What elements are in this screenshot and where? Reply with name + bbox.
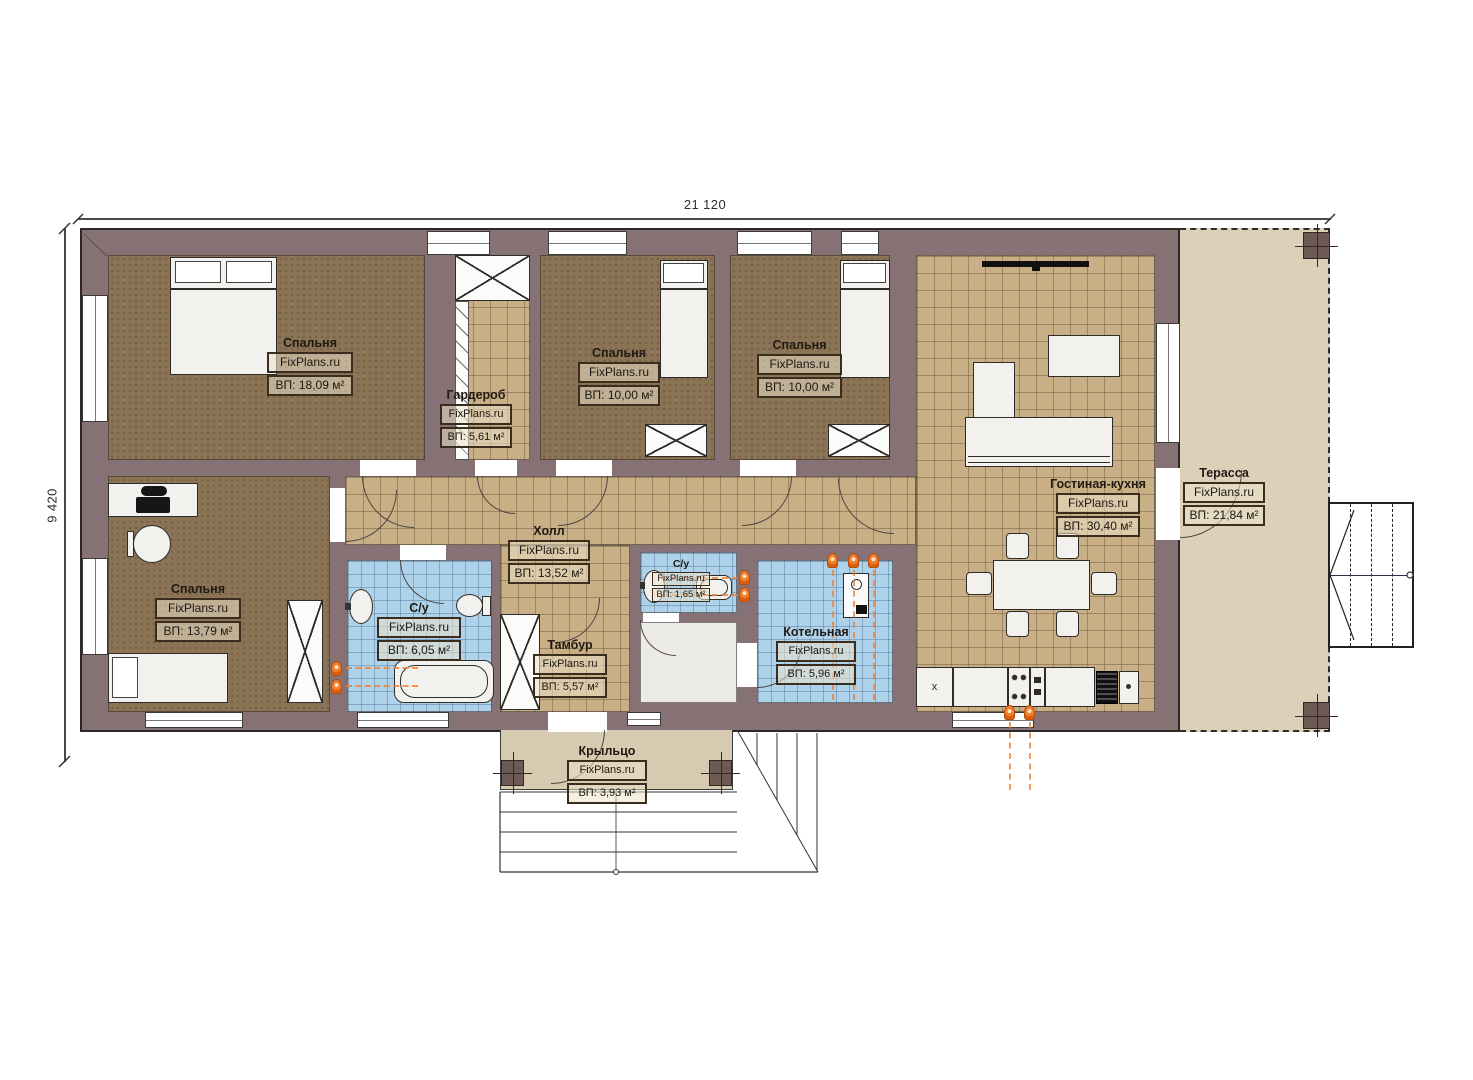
dimension-width-label: 21 120 [630, 197, 780, 212]
post-axis-line [1317, 224, 1318, 267]
watermark: FixPlans.ru [533, 654, 607, 675]
door-opening [740, 460, 796, 476]
room-name: Тамбур [533, 638, 607, 652]
room-name: С/у [377, 601, 461, 615]
pillow [175, 261, 221, 283]
room-name: Спальня [155, 582, 241, 596]
printer [141, 486, 167, 496]
dining-chair [1006, 611, 1029, 637]
room-name: Терасса [1183, 466, 1265, 480]
heating-pipe-line [346, 685, 418, 687]
window [952, 712, 1034, 728]
printer-body [136, 497, 170, 513]
room-name: Спальня [267, 336, 353, 350]
radiator-valve-icon [331, 661, 342, 676]
gas-connection-icon [868, 553, 879, 568]
gas-connection-icon [827, 553, 838, 568]
gas-connection-icon [848, 553, 859, 568]
wardrobe-cabinet [828, 424, 890, 457]
terrace-door-opening [1156, 468, 1180, 540]
gas-pipe-line [873, 570, 875, 700]
door-opening [360, 460, 416, 476]
faucet [345, 603, 351, 610]
dining-chair [1006, 533, 1029, 559]
refrigerator [1096, 671, 1118, 704]
door-opening [475, 460, 517, 476]
room-name: Котельная [776, 625, 856, 639]
door-opening [556, 460, 612, 476]
heating-pipe-line [346, 667, 418, 669]
watermark: FixPlans.ru [440, 404, 512, 425]
room-name: Спальня [578, 346, 660, 360]
room-label-boiler-room: Котельная FixPlans.ru ВП: 5,96 м² [776, 625, 856, 685]
room-label-bedroom3: Спальня FixPlans.ru ВП: 10,00 м² [757, 338, 842, 398]
window [548, 231, 627, 255]
porch-post [709, 760, 732, 786]
dimension-line-top [78, 218, 1331, 220]
coffee-table [1048, 335, 1120, 377]
terrace-post [1303, 232, 1330, 259]
sofa [965, 417, 1113, 467]
oven [1030, 667, 1045, 707]
bathtub-basin [400, 665, 488, 698]
entrance-door-opening [548, 712, 607, 732]
room-area: ВП: 21,84 м² [1183, 505, 1265, 526]
pillow [843, 263, 886, 283]
gas-connection-icon [1024, 705, 1035, 720]
watermark: FixPlans.ru [1183, 482, 1265, 503]
tv-mount [1032, 267, 1040, 271]
wardrobe-cabinet [287, 600, 323, 703]
room-name: С/у [652, 558, 710, 570]
dining-chair [1091, 572, 1117, 595]
pillow [663, 263, 704, 283]
room-name: Крыльцо [567, 744, 647, 758]
post-axis-line [513, 752, 514, 794]
wardrobe-cabinet [645, 424, 707, 457]
window [737, 231, 812, 255]
stove [1008, 667, 1030, 707]
terrace-stairs [1328, 502, 1414, 648]
sink [349, 589, 373, 624]
kitchen-counter [1045, 667, 1095, 707]
pillow [226, 261, 272, 283]
pillow [112, 657, 138, 698]
radiator-valve-icon [331, 679, 342, 694]
room-name: Гардероб [440, 388, 512, 402]
dining-chair [1056, 611, 1079, 637]
office-chair [133, 525, 171, 563]
faucet [640, 582, 645, 589]
boiler-hatch [856, 605, 867, 614]
room-label-vestibule: Тамбур FixPlans.ru ВП: 5,57 м² [533, 638, 607, 698]
room-area: ВП: 13,52 м² [508, 563, 590, 584]
room-label-bathroom1: С/у FixPlans.ru ВП: 6,05 м² [377, 601, 461, 661]
porch-post [501, 760, 524, 786]
window [841, 231, 879, 255]
watermark: FixPlans.ru [1056, 493, 1140, 514]
dining-table [993, 560, 1090, 610]
door-opening [400, 545, 446, 560]
room-area: ВП: 1,65 м² [652, 588, 710, 602]
door-opening [330, 488, 345, 542]
sofa-backrest [968, 456, 1110, 463]
chair-back [127, 531, 134, 557]
window [357, 712, 449, 728]
gas-pipe-line [1029, 722, 1031, 790]
room-area: ВП: 30,40 м² [1056, 516, 1140, 537]
room-area: ВП: 3,93 м² [567, 783, 647, 804]
room-label-bedroom2: Спальня FixPlans.ru ВП: 10,00 м² [578, 346, 660, 406]
watermark: FixPlans.ru [757, 354, 842, 375]
window [1156, 323, 1180, 443]
single-bed [840, 260, 890, 378]
room-area: ВП: 5,57 м² [533, 677, 607, 698]
dimension-height-label: 9 420 [45, 466, 60, 546]
room-label-porch: Крыльцо FixPlans.ru ВП: 3,93 м² [567, 744, 647, 804]
radiator-valve-icon [739, 570, 750, 585]
watermark: FixPlans.ru [578, 362, 660, 383]
double-bed [170, 257, 277, 375]
blanket-line [170, 288, 277, 290]
floor-plan: 21 120 9 420 [0, 0, 1473, 1080]
room-name: Спальня [757, 338, 842, 352]
post-axis-line [1317, 694, 1318, 737]
single-bed [108, 653, 228, 703]
watermark: FixPlans.ru [508, 540, 590, 561]
room-label-bedroom1: Спальня FixPlans.ru ВП: 18,09 м² [267, 336, 353, 396]
room-area: ВП: 5,96 м² [776, 664, 856, 685]
radiator-valve-icon [739, 587, 750, 602]
room-name: Холл [508, 524, 590, 538]
window [82, 295, 108, 422]
window [82, 558, 108, 655]
stair-direction-line [1330, 575, 1412, 576]
wardrobe-shelving-unit [455, 255, 530, 301]
gas-pipe-line [1009, 722, 1011, 790]
gas-connection-icon [1004, 705, 1015, 720]
dimension-line-left [64, 228, 66, 762]
window [145, 712, 243, 728]
room-area: ВП: 13,79 м² [155, 621, 241, 642]
toilet-tank [482, 596, 491, 616]
blanket-line [840, 288, 890, 290]
room-label-wardrobe: Гардероб FixPlans.ru ВП: 5,61 м² [440, 388, 512, 448]
kitchen-sink-cabinet: x [916, 667, 953, 707]
room-label-living-kitchen: Гостиная-кухня FixPlans.ru ВП: 30,40 м² [1056, 477, 1140, 537]
blanket-line [660, 288, 708, 290]
watermark: FixPlans.ru [776, 641, 856, 662]
room-name: Гостиная-кухня [1056, 477, 1140, 491]
kitchen-counter [953, 667, 1008, 707]
watermark: FixPlans.ru [377, 617, 461, 638]
window [427, 231, 490, 255]
room-area: ВП: 18,09 м² [267, 375, 353, 396]
single-bed [660, 260, 708, 378]
watermark: FixPlans.ru [567, 760, 647, 781]
door-opening [737, 643, 757, 687]
room-label-bedroom4: Спальня FixPlans.ru ВП: 13,79 м² [155, 582, 241, 642]
room-area: ВП: 5,61 м² [440, 427, 512, 448]
room-label-terrace: Терасса FixPlans.ru ВП: 21,84 м² [1183, 466, 1265, 526]
post-axis-line [721, 752, 722, 794]
room-hall-floor [345, 476, 916, 545]
window [627, 712, 661, 726]
room-area: ВП: 10,00 м² [757, 377, 842, 398]
room-area: ВП: 10,00 м² [578, 385, 660, 406]
room-label-hall: Холл FixPlans.ru ВП: 13,52 м² [508, 524, 590, 584]
watermark: FixPlans.ru [267, 352, 353, 373]
watermark: FixPlans.ru [155, 598, 241, 619]
dining-chair [966, 572, 992, 595]
room-label-bathroom2: С/у FixPlans.ru ВП: 1,65 м² [652, 558, 710, 602]
sink-mark: x [932, 681, 938, 693]
watermark: FixPlans.ru [652, 572, 710, 586]
room-area: ВП: 6,05 м² [377, 640, 461, 661]
faucet [1126, 684, 1131, 689]
terrace-post [1303, 702, 1330, 729]
